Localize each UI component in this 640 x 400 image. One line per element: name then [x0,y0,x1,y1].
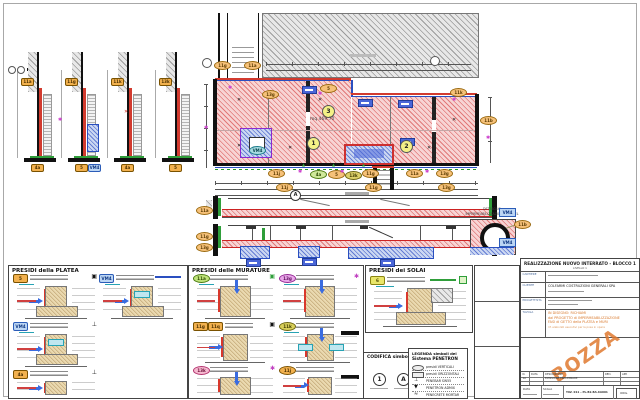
waterstop-icon: ⊥ [92,322,97,328]
titleblock-row-cliente: CLIENTE COLFARMI COSTRUZIONI GENERALI SP… [521,282,639,298]
triangle-icon: ▲ [362,163,365,167]
legend-title-2: Sistema PENETRON [412,356,458,361]
cross-icon: ✕ [124,110,128,115]
marker-icon [8,66,16,74]
slab-hatch-left [217,81,351,163]
zone-circle-1: 1 [307,137,320,150]
panel-solai: PRESIDI dei SOLAI 6 [365,265,473,333]
star-icon: ✱ [270,366,275,372]
star-icon: ✱ [58,118,62,123]
target-icon: ▣ [269,274,275,280]
area-label: mq 469.70 [310,117,334,122]
detail-murature-3: 11g 11q ▣ [193,322,275,364]
side-panel [474,265,520,399]
callout: 11j [268,169,285,178]
section-pit [298,246,320,258]
callout-badge: 5 [75,164,88,172]
star-icon: ✱ [452,98,456,103]
pit-tag [302,258,317,266]
membrane-tag [358,99,373,107]
legend-item: ≈ PENECRETE MORTAR [412,392,464,398]
codifica-symbol-number: 1 [373,373,386,386]
legend-item: presidi ORIZZONTALI [412,371,464,378]
callout-badge: 4a [121,164,134,172]
pit-2 [344,144,394,165]
drawing-sheet: ✱ 11a 4a 11g 5 VM4 ✕ 11k 4a 13k 5 [0,0,640,400]
existing-building-hatch [262,13,479,78]
target-icon: ▣ [91,274,97,280]
titleblock-row-tavola: TAVOLA IN DISEGNO: RICHIAMI dal PROGETTO… [521,309,639,338]
valve-icon: ▼ [414,385,418,390]
marker-icon [430,56,440,66]
drawing-code: TAV. 011 - PL.B2.BA.6A001 [566,391,608,394]
detail-murature-6: 11j [279,366,359,396]
callout: 5 [320,84,337,93]
callout-badge: 4a [31,164,44,172]
callout-badge: 11a [21,78,34,86]
star-icon: ✱ [228,86,232,91]
callout-badge: 13k [159,78,172,86]
detail-badge: 13g [279,274,296,283]
callout: VM4 [249,146,266,155]
waterstop-icon: ⊥ [414,378,418,383]
callout-badge: VM4 [499,208,516,217]
membrane-tag [302,86,317,94]
detail-badge: VM4 [99,274,114,283]
callout-badge: 11g [65,78,78,86]
callout: 11j [276,183,293,192]
title-block: REALIZZAZIONE NUOVO INTERRATO - BLOCCO 1… [520,258,640,399]
green-square-icon [459,276,467,284]
callout: 4a [310,170,327,179]
callout: 11a [406,169,423,178]
legend-item: ▼ PENETRON ADMIX [412,385,464,392]
detail-badge: 11q [208,322,223,331]
callout-badge: 5 [169,164,182,172]
section-pit [240,246,270,259]
wall-section-1: 11a 4a [22,52,58,174]
marker-icon [17,66,25,74]
detail-badge: 6 [370,276,385,285]
wall-section-2: 11g 5 VM4 [66,52,102,174]
detail-murature-1: 11a ▣ [193,274,275,320]
titleblock-footer: DATA SCALA TAV. 011 - PL.B2.BA.6A001 ORI… [521,385,639,399]
detail-badge: 11j [279,366,296,375]
stamp-box: ORIG. [616,388,637,399]
mortar-icon: ≈ [414,392,418,397]
panel-solai-title: PRESIDI dei SOLAI [369,268,425,274]
detail-platea-3: VM4 ⊥ [13,322,97,368]
legend-box: LEGENDA simboli del Sistema PENETRON pre… [408,348,468,399]
triangle-icon: ▲ [302,163,305,167]
detail-platea-1: 5 ▣ [13,274,97,320]
callout: 11b [514,220,531,229]
detail-badge: 11a [193,274,210,283]
column-cross-icon: ✕ [452,118,456,123]
detail-murature-4: 11k [279,322,359,364]
star-icon: ✱ [340,170,344,175]
pit-tag [380,259,395,267]
target-icon: ▣ [269,322,275,328]
triangle-icon: ▲ [332,163,335,167]
callout: 13g [196,243,213,252]
detail-badge: VM4 [13,322,28,331]
legend-item: presidi VERTICALI [412,364,464,371]
callout: 11g [362,169,379,178]
callout: 13g [438,183,455,192]
callout-badge: VM4 [499,238,516,247]
callout: 11g [214,61,231,70]
detail-platea-4: 4a ⊥ [13,370,97,396]
callout: 11k [450,88,467,97]
zone-circle-2: 2 [400,140,413,153]
waterline-symbol [155,276,181,278]
star-icon: ✱ [204,126,208,131]
column-cross-icon: ✕ [318,98,322,103]
marker-icon [202,58,212,68]
callout: 11b [480,116,497,125]
column-cross-icon: ✕ [288,146,292,151]
detail-platea-2: VM4 [99,274,183,320]
waterstop-icon: ⊥ [92,370,97,376]
callout: 11a [244,61,261,70]
detail-badge: 13k [193,366,210,375]
detail-badge: 5 [13,274,28,283]
legend-item: ⊥ PENEBAR SW55 [412,378,464,385]
section-marker-a: A [290,190,301,201]
codifica-title: CODIFICA simboli [367,355,411,360]
project-subtitle: LIVELLO 1 [521,267,639,270]
star-icon: ✱ [354,274,359,280]
star-icon: ✱ [425,170,429,175]
callout: 13g [262,90,279,99]
stair-shaft [227,13,259,81]
callout: 13k [345,171,362,180]
client-name: COLFARMI COSTRUZIONI GENERALI SPA [548,284,615,288]
column-cross-icon: ✕ [427,146,431,151]
star-icon: ✱ [298,170,302,175]
callout: 13g [436,169,453,178]
callout-badge: VM4 [88,164,101,172]
star-icon: ✱ [486,136,490,141]
green-line-symbol [430,279,456,281]
callout: 11a [196,206,213,215]
panel-platea: PRESIDI della PLATEA 5 ▣ VM4 VM4 ⊥ 4a ⊥ [8,265,188,399]
detail-badge: 4a [13,370,28,379]
membrane-tag [398,100,413,108]
callout: 11g [365,183,382,192]
star-icon: ✱ [318,92,322,97]
column-cross-icon: ✕ [237,98,241,103]
revision-table: N. DATA DESCRIZIONE RED. APP. 1A EMISSIO… [521,371,639,386]
wall-section-4: 13k 5 [160,52,196,174]
callout: 11g [196,232,213,241]
detail-badge: 11k [279,322,296,331]
detail-murature-5: 13k ✱ [193,366,275,396]
detail-solai-1: 6 [370,276,468,328]
callout-badge: 11k [111,78,124,86]
detail-murature-2: 13g ✱ [279,274,359,320]
panel-murature: PRESIDI delle MURATURE 11a ▣ 13g ✱ 11g 1… [188,265,364,399]
wall-section-3: ✕ 11k 4a [112,52,148,174]
detail-badge: 11g [193,322,208,331]
section-pit [348,247,434,259]
pit-tag [246,259,261,267]
